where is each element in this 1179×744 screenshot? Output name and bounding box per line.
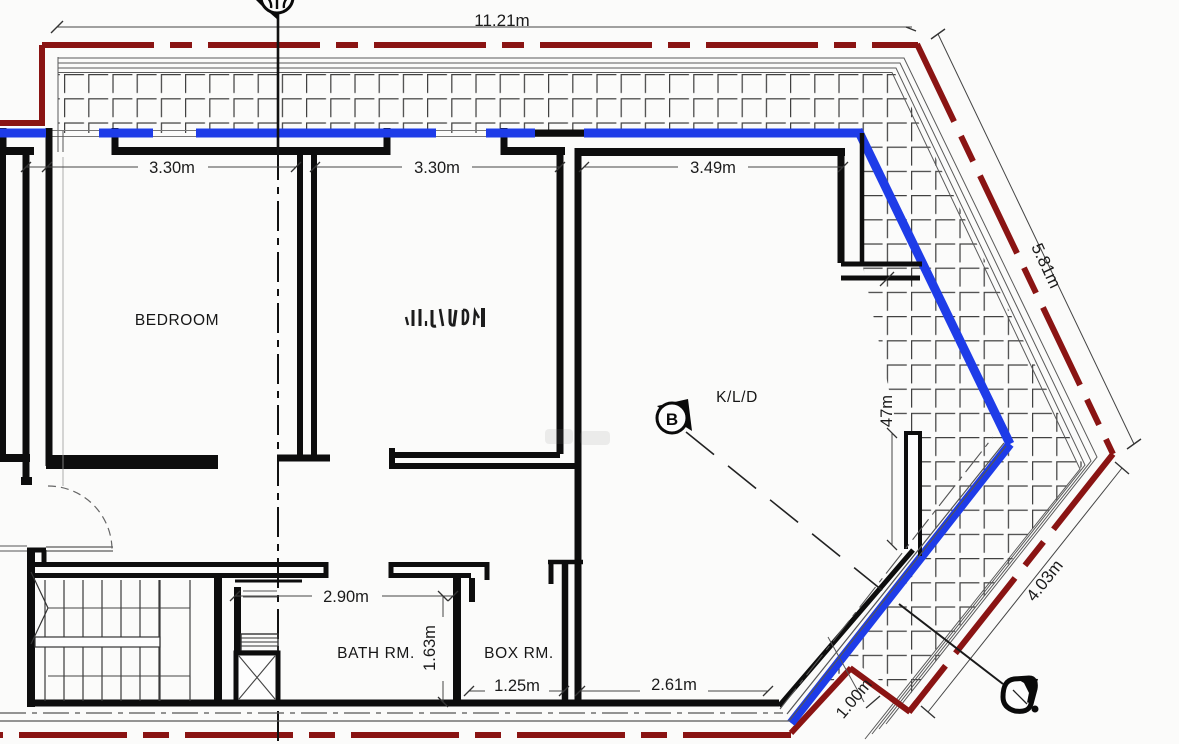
svg-text:3.30m: 3.30m bbox=[149, 159, 195, 177]
svg-text:1.25m: 1.25m bbox=[494, 677, 540, 695]
svg-text:47m: 47m bbox=[878, 395, 896, 427]
svg-text:3.30m: 3.30m bbox=[414, 159, 460, 177]
svg-text:11.21m: 11.21m bbox=[474, 11, 529, 30]
svg-text:BEDROOM: BEDROOM bbox=[135, 312, 219, 329]
svg-text:B: B bbox=[666, 410, 678, 429]
svg-text:1.63m: 1.63m bbox=[421, 625, 439, 671]
svg-text:BOX RM.: BOX RM. bbox=[484, 645, 554, 662]
svg-text:2.90m: 2.90m bbox=[323, 588, 369, 606]
svg-text:BATH RM.: BATH RM. bbox=[337, 645, 415, 662]
svg-text:3.49m: 3.49m bbox=[690, 159, 736, 177]
svg-text:K/L/D: K/L/D bbox=[716, 389, 758, 406]
svg-text:2.61m: 2.61m bbox=[651, 676, 697, 694]
